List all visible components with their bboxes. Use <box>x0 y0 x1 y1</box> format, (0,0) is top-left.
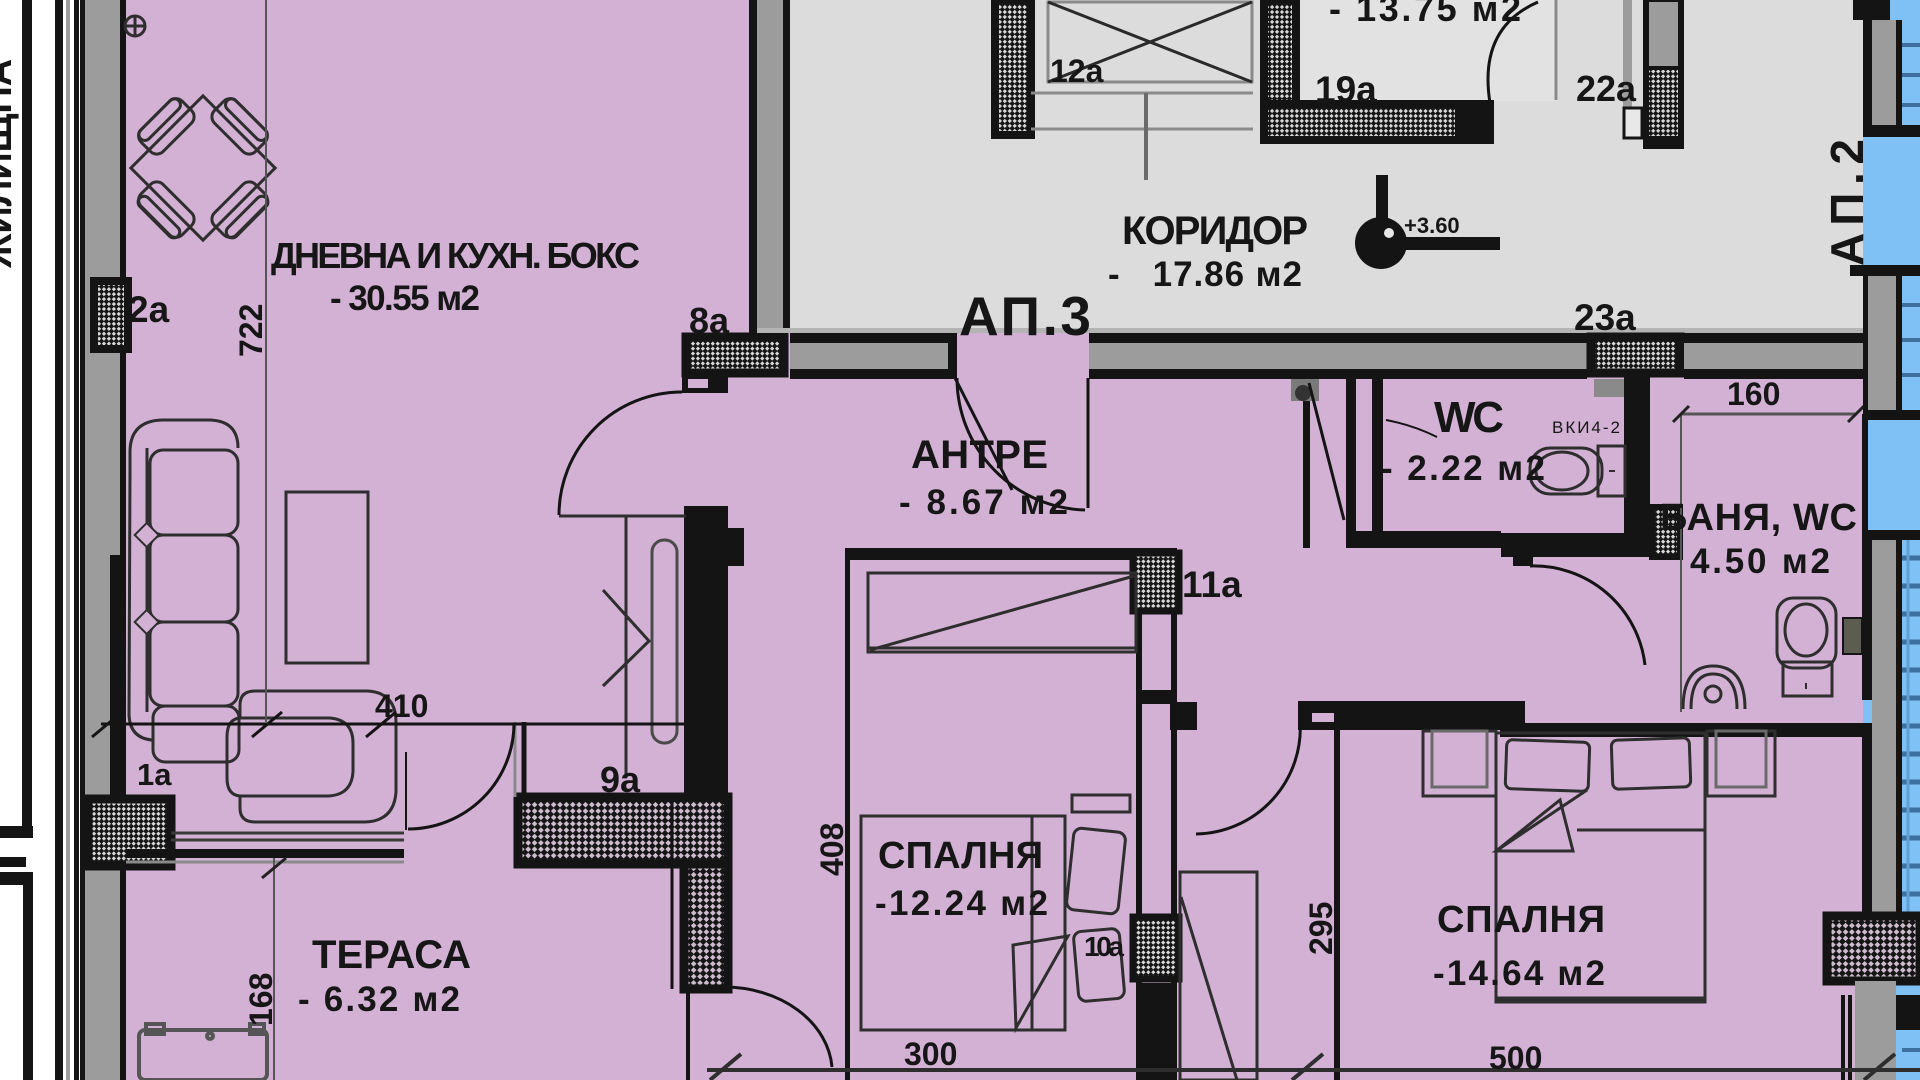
svg-text:722: 722 <box>233 304 269 357</box>
svg-text:КОРИДОР: КОРИДОР <box>1122 209 1308 253</box>
svg-text:410: 410 <box>375 688 428 724</box>
svg-text:408: 408 <box>814 823 850 876</box>
svg-text:295: 295 <box>1303 902 1339 955</box>
svg-text:ТЕРАСА: ТЕРАСА <box>312 933 471 977</box>
svg-text:- 30.55 м2: - 30.55 м2 <box>330 279 480 318</box>
svg-text:22a: 22a <box>1576 68 1637 109</box>
svg-text:300: 300 <box>904 1036 957 1072</box>
svg-text:2a: 2a <box>128 289 170 330</box>
svg-text:19a: 19a <box>1315 69 1377 110</box>
svg-text:БАНЯ, WC: БАНЯ, WC <box>1660 497 1857 539</box>
svg-text:WC: WC <box>1434 393 1504 442</box>
svg-text:АП.2: АП.2 <box>1821 139 1873 266</box>
svg-text:168: 168 <box>243 973 279 1026</box>
svg-text:ДНЕВНА И КУХН. БОКС: ДНЕВНА И КУХН. БОКС <box>271 235 640 276</box>
svg-text:ЖИЛИЩНА: ЖИЛИЩНА <box>0 59 20 269</box>
svg-text:500: 500 <box>1489 1040 1542 1076</box>
svg-text:12a: 12a <box>1050 53 1104 89</box>
svg-text:9a: 9a <box>600 759 641 800</box>
svg-text:ВКИ4-2: ВКИ4-2 <box>1552 418 1620 437</box>
svg-text:АП.3: АП.3 <box>959 285 1091 347</box>
svg-text:- 17.86 м2: - 17.86 м2 <box>1108 255 1302 294</box>
svg-text:- 13.75 м2: - 13.75 м2 <box>1329 0 1521 29</box>
svg-text:10a: 10a <box>1084 931 1124 962</box>
svg-text:11a: 11a <box>1182 564 1242 605</box>
svg-text:СПАЛНЯ: СПАЛНЯ <box>1437 899 1605 941</box>
svg-text:-12.24 м2: -12.24 м2 <box>875 884 1048 923</box>
svg-text:23a: 23a <box>1574 297 1636 338</box>
svg-text:160: 160 <box>1727 376 1780 412</box>
svg-text:8a: 8a <box>689 300 730 341</box>
svg-text:+3.60: +3.60 <box>1404 213 1460 238</box>
svg-text:1a: 1a <box>137 757 172 792</box>
svg-text:АНТРЕ: АНТРЕ <box>911 433 1048 477</box>
svg-text:-14.64 м2: -14.64 м2 <box>1433 954 1605 993</box>
svg-text:СПАЛНЯ: СПАЛНЯ <box>878 835 1043 877</box>
